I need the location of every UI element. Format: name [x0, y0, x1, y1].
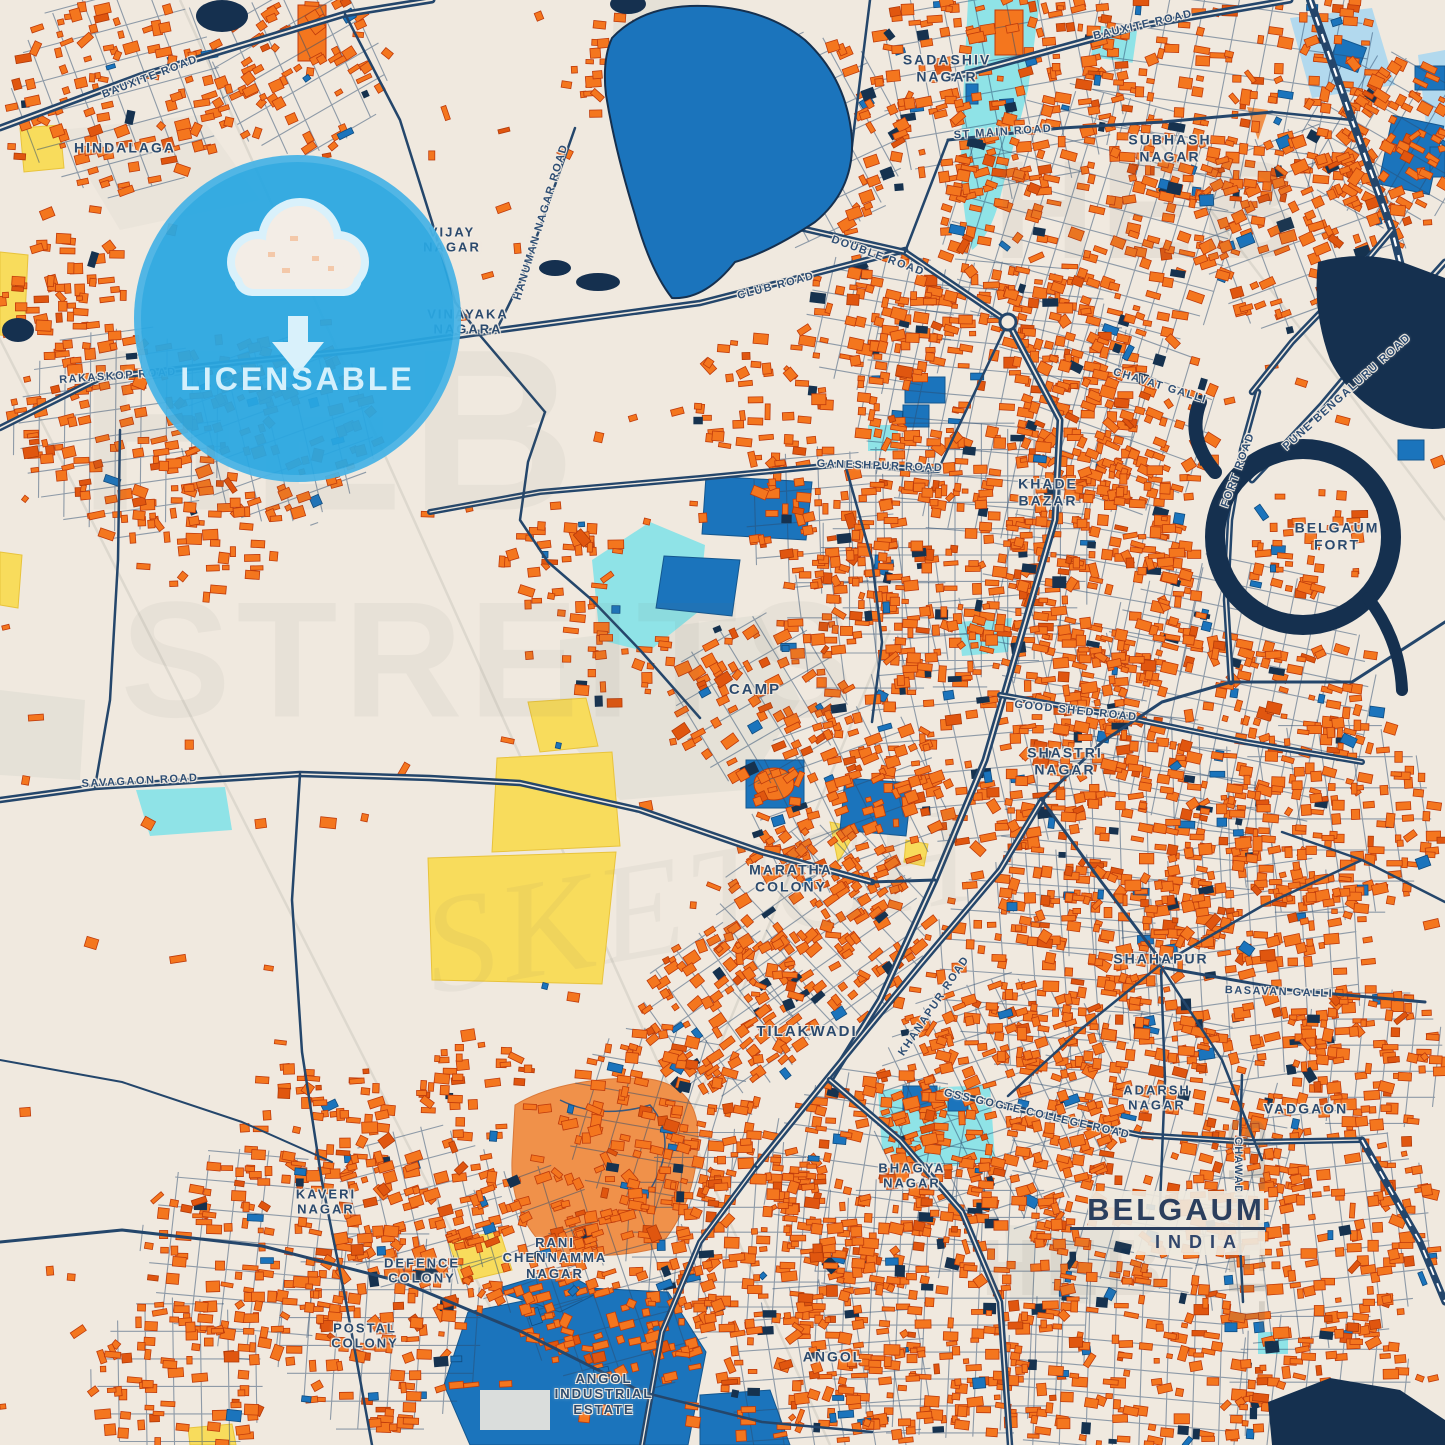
- place-label: SHAHAPUR: [1113, 951, 1208, 968]
- road-label: ST MAIN ROAD: [953, 123, 1052, 142]
- road-label: PUNE BENGALURU ROAD: [1281, 331, 1414, 452]
- road-label: FORT ROAD: [1219, 431, 1257, 509]
- place-label: VADGAON: [1264, 1101, 1349, 1118]
- place-label: SUBHASHNAGAR: [1128, 131, 1211, 164]
- badge-label: LICENSABLE: [134, 361, 461, 398]
- place-label: MARATHACOLONY: [749, 861, 833, 894]
- place-label: ANGOLINDUSTRIALESTATE: [555, 1371, 654, 1417]
- road-label: BASAVAN GALLI: [1225, 984, 1334, 1000]
- road-label: GOOD SHED ROAD: [1014, 699, 1138, 724]
- place-label: HINDALAGA: [74, 140, 176, 157]
- road-label: SAVAGAON ROAD: [81, 772, 198, 790]
- place-label: ADARSHNAGAR: [1123, 1083, 1191, 1114]
- road-label: KHANAPUR ROAD: [896, 954, 972, 1058]
- road-label: CLUB ROAD: [736, 270, 816, 302]
- place-label: POSTALCOLONY: [331, 1321, 399, 1352]
- road-label: CHAWADI: [1232, 1137, 1244, 1199]
- road-label: HANUMAN NAGAR ROAD: [511, 142, 570, 301]
- road-label: GANESHPUR ROAD: [816, 458, 943, 474]
- road-label: CHAVAT GALLI: [1112, 366, 1209, 406]
- place-label: DEFENCECOLONY: [384, 1256, 460, 1287]
- place-label: KHADEBAZAR: [1018, 475, 1078, 508]
- place-label: ANGOL: [803, 1349, 864, 1366]
- road-label: GSS GOGTE COLLEGE ROAD: [943, 1087, 1131, 1142]
- road-label: BAUXITE ROAD: [100, 53, 199, 101]
- place-label: BHAGYANAGAR: [878, 1161, 945, 1192]
- place-label: SADASHIVNAGAR: [903, 51, 991, 84]
- road-label: DOUBLE ROAD: [830, 234, 927, 279]
- road-label: BAUXITE ROAD: [1092, 8, 1194, 43]
- cloud-download-icon: [134, 155, 461, 482]
- place-label: KAVERINAGAR: [296, 1187, 356, 1218]
- place-label: BELGAUMFORT: [1295, 519, 1380, 552]
- city-title: BELGAUM: [1088, 1191, 1264, 1228]
- place-label: CAMP: [729, 681, 781, 699]
- country-subtitle: INDIA: [1134, 1230, 1265, 1255]
- map-poster: HEBSTREITSSKETCHHEBSTREITHEB HINDALAGASA…: [0, 0, 1445, 1445]
- licensable-badge[interactable]: LICENSABLE: [134, 155, 461, 482]
- place-label: TILAKWADI: [756, 1023, 857, 1041]
- place-label: RANICHENNAMMANAGAR: [503, 1235, 608, 1281]
- place-label: SHASTRINAGAR: [1027, 744, 1102, 777]
